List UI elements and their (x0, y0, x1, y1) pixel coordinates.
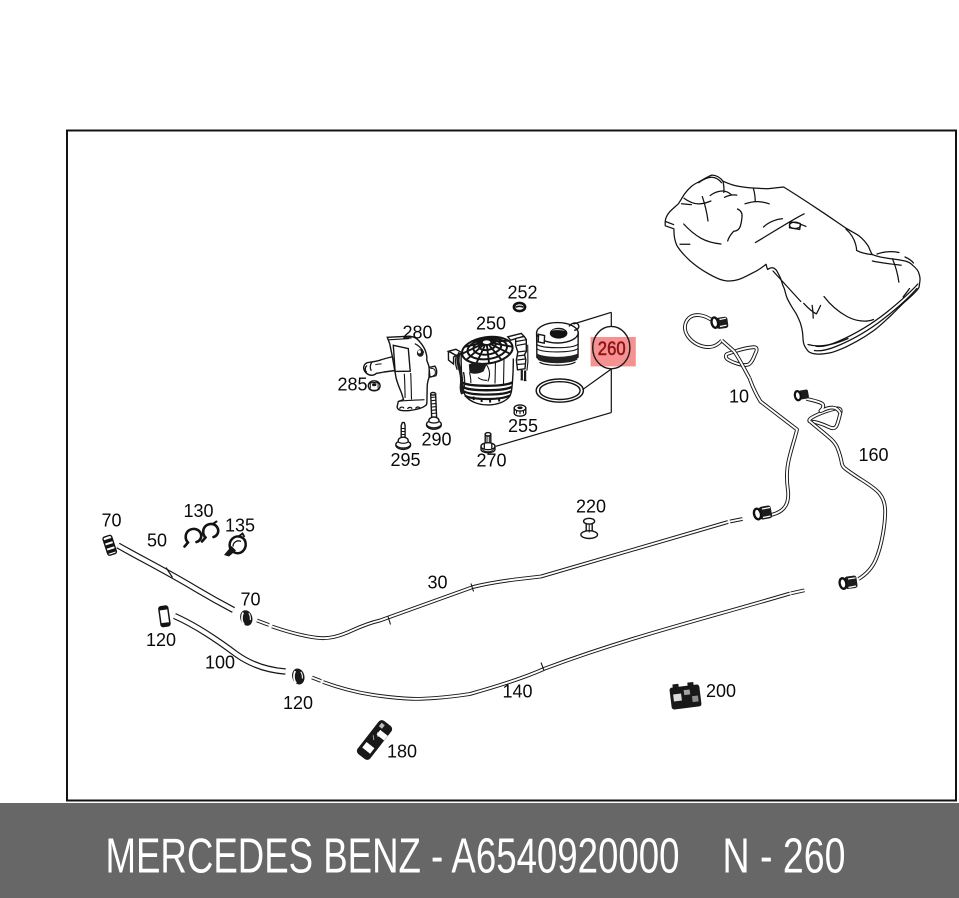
svg-text:160: 160 (859, 445, 889, 465)
svg-text:220: 220 (576, 497, 606, 517)
svg-text:260: 260 (598, 339, 626, 360)
svg-text:255: 255 (508, 416, 538, 436)
svg-text:MERCEDES BENZ - A6540920000: MERCEDES BENZ - A6540920000 (106, 830, 680, 884)
svg-text:140: 140 (503, 682, 533, 702)
svg-text:50: 50 (147, 531, 167, 551)
svg-text:70: 70 (241, 590, 261, 610)
svg-text:120: 120 (146, 630, 176, 650)
svg-text:280: 280 (403, 323, 433, 343)
svg-text:30: 30 (428, 573, 448, 593)
svg-text:N - 260: N - 260 (723, 830, 846, 884)
svg-text:180: 180 (387, 742, 417, 762)
svg-text:270: 270 (477, 451, 507, 471)
svg-text:295: 295 (391, 450, 421, 470)
svg-text:120: 120 (283, 693, 313, 713)
svg-text:290: 290 (422, 430, 452, 450)
svg-text:70: 70 (102, 511, 122, 531)
svg-text:10: 10 (729, 387, 749, 407)
svg-text:135: 135 (225, 516, 255, 536)
svg-text:252: 252 (508, 283, 538, 303)
svg-text:285: 285 (338, 375, 368, 395)
svg-text:130: 130 (184, 501, 214, 521)
svg-text:200: 200 (706, 681, 736, 701)
svg-text:250: 250 (476, 314, 506, 334)
svg-text:100: 100 (205, 653, 235, 673)
